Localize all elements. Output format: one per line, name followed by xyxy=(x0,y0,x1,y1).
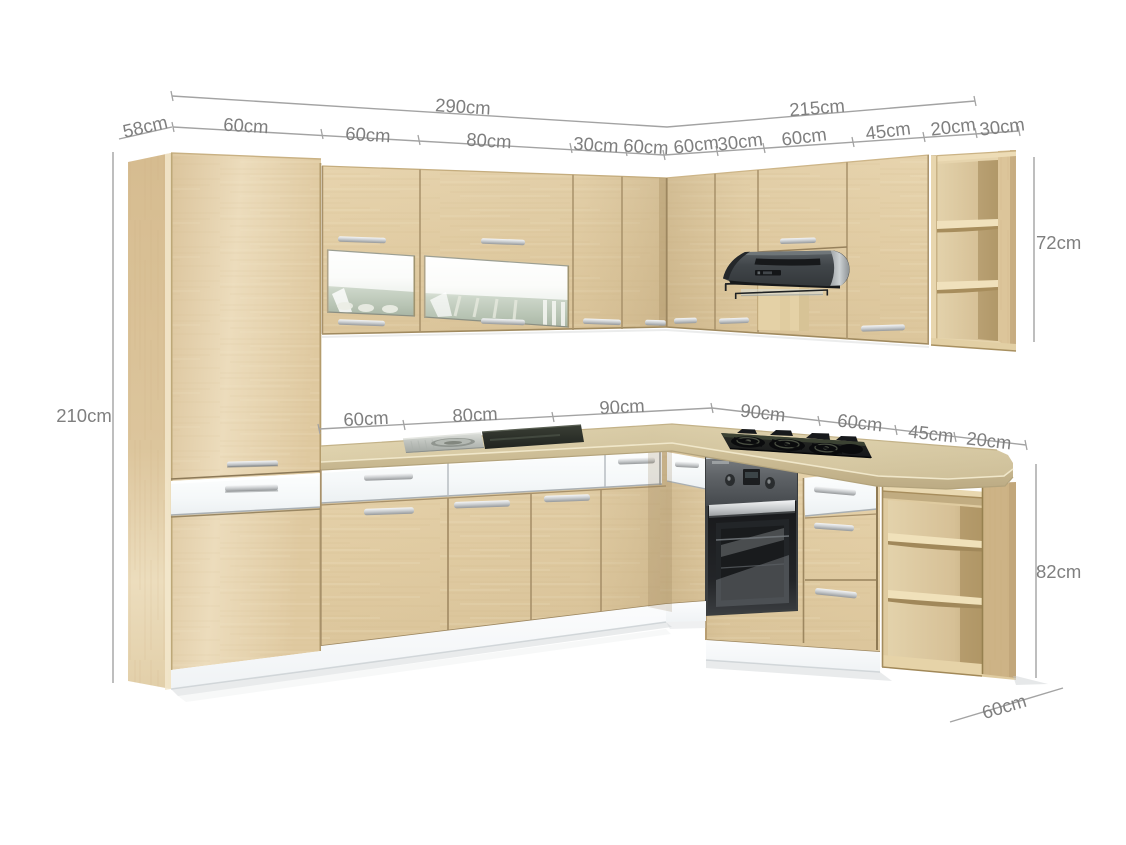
svg-text:60cm: 60cm xyxy=(223,114,269,138)
svg-text:60cm: 60cm xyxy=(345,123,391,147)
svg-text:80cm: 80cm xyxy=(466,129,512,153)
svg-text:30cm: 30cm xyxy=(573,133,619,157)
svg-text:60cm: 60cm xyxy=(623,135,669,159)
svg-text:80cm: 80cm xyxy=(452,403,498,426)
svg-text:82cm: 82cm xyxy=(1036,561,1081,582)
svg-text:210cm: 210cm xyxy=(56,405,112,426)
svg-text:290cm: 290cm xyxy=(435,94,492,118)
svg-text:72cm: 72cm xyxy=(1036,232,1081,253)
svg-text:90cm: 90cm xyxy=(599,395,645,418)
svg-text:60cm: 60cm xyxy=(343,407,389,430)
